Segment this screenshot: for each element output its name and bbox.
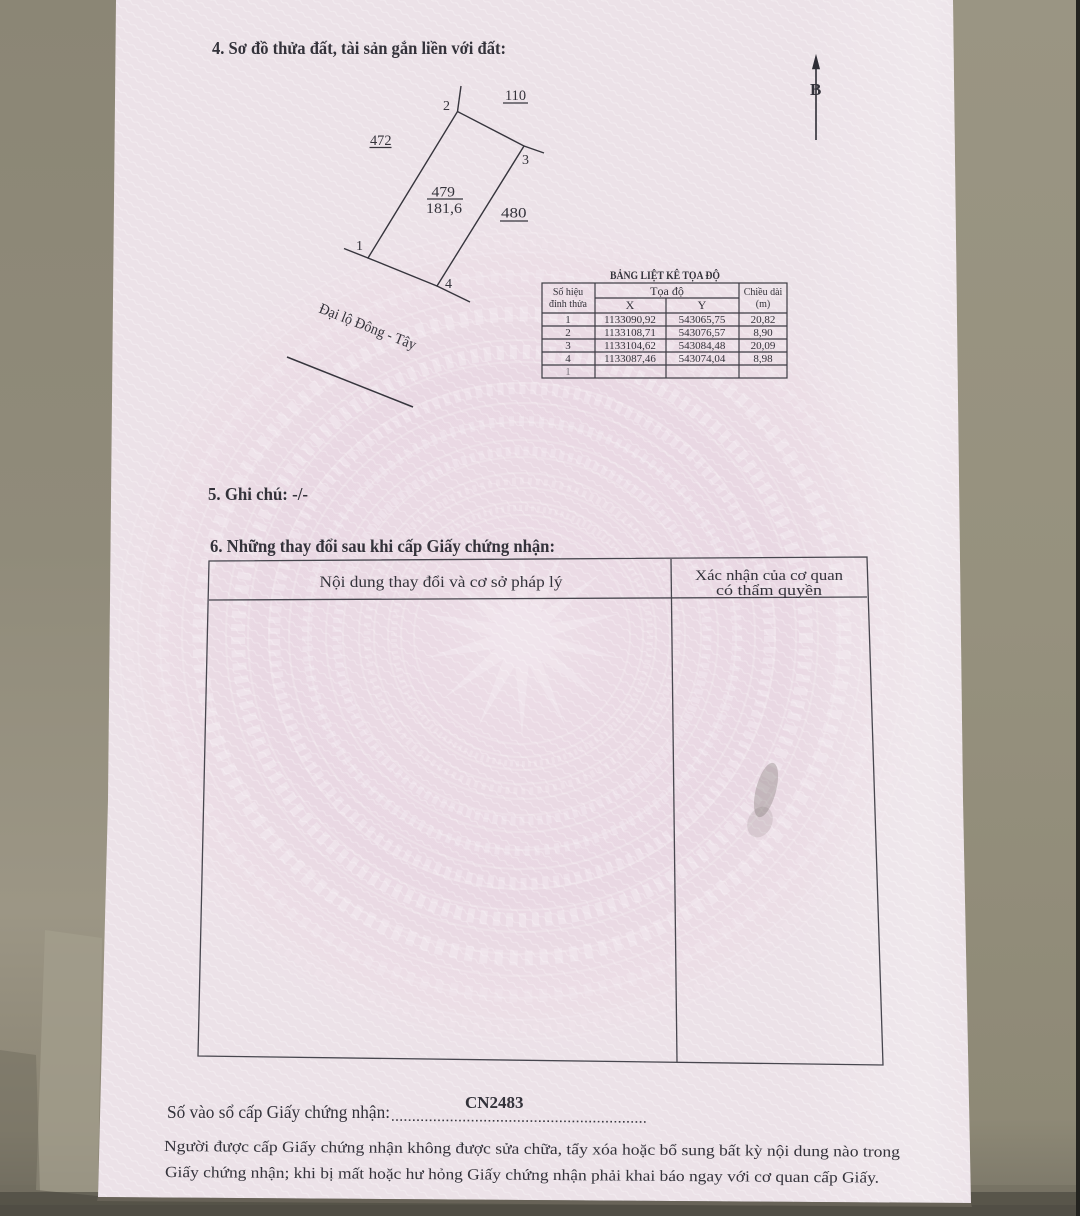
svg-text:3: 3 — [565, 340, 571, 352]
svg-text:4: 4 — [445, 277, 452, 292]
svg-text:X: X — [626, 298, 635, 312]
svg-text:8,90: 8,90 — [753, 327, 773, 339]
svg-text:2: 2 — [443, 99, 450, 114]
svg-text:181,6: 181,6 — [426, 201, 463, 217]
svg-text:1133090,92: 1133090,92 — [604, 314, 656, 326]
svg-text:543074,04: 543074,04 — [679, 353, 726, 365]
svg-text:CN2483: CN2483 — [465, 1093, 524, 1112]
svg-text:Y: Y — [698, 298, 707, 312]
svg-text:1: 1 — [565, 314, 571, 326]
svg-text:543076,57: 543076,57 — [679, 327, 726, 339]
svg-text:5. Ghi chú: -/-: 5. Ghi chú: -/- — [208, 484, 308, 504]
svg-text:2: 2 — [565, 327, 571, 339]
svg-text:6. Những thay đổi sau khi cấp: 6. Những thay đổi sau khi cấp Giấy chứng… — [210, 536, 555, 556]
svg-text:đỉnh thửa: đỉnh thửa — [549, 299, 587, 310]
svg-text:480: 480 — [501, 206, 527, 222]
svg-text:B: B — [810, 80, 821, 99]
svg-text:Xác nhận của cơ quan: Xác nhận của cơ quan — [695, 568, 844, 584]
svg-text:1: 1 — [356, 239, 363, 254]
svg-text:3: 3 — [522, 153, 529, 168]
svg-text:20,82: 20,82 — [751, 314, 776, 326]
svg-text:Tọa độ: Tọa độ — [650, 284, 684, 298]
svg-text:4: 4 — [565, 353, 571, 365]
svg-text:479: 479 — [432, 185, 456, 201]
svg-text:1133087,46: 1133087,46 — [604, 353, 656, 365]
svg-text:có thẩm quyền: có thẩm quyền — [716, 583, 823, 599]
svg-text:1133108,71: 1133108,71 — [604, 327, 656, 339]
svg-text:110: 110 — [505, 88, 526, 104]
svg-text:543065,75: 543065,75 — [679, 314, 726, 326]
svg-text:8,98: 8,98 — [753, 353, 773, 365]
svg-text:472: 472 — [370, 133, 392, 149]
svg-text:(m): (m) — [756, 299, 770, 310]
svg-text:1: 1 — [565, 366, 571, 378]
svg-text:20,09: 20,09 — [751, 340, 776, 352]
svg-text:Số hiệu: Số hiệu — [553, 287, 583, 298]
svg-text:BẢNG LIỆT KÊ TỌA ĐỘ: BẢNG LIỆT KÊ TỌA ĐỘ — [610, 268, 720, 282]
svg-text:Nội dung thay đổi và cơ sở phá: Nội dung thay đổi và cơ sở pháp lý — [320, 574, 563, 591]
svg-text:Số vào sổ cấp Giấy chứng nhận:: Số vào sổ cấp Giấy chứng nhận: — [167, 1102, 390, 1122]
svg-text:4. Sơ đồ thửa đất, tài sản gắn: 4. Sơ đồ thửa đất, tài sản gắn liền với … — [212, 38, 506, 58]
svg-text:Chiều dài: Chiều dài — [744, 287, 783, 298]
svg-text:543084,48: 543084,48 — [679, 340, 726, 352]
svg-text:1133104,62: 1133104,62 — [604, 340, 656, 352]
